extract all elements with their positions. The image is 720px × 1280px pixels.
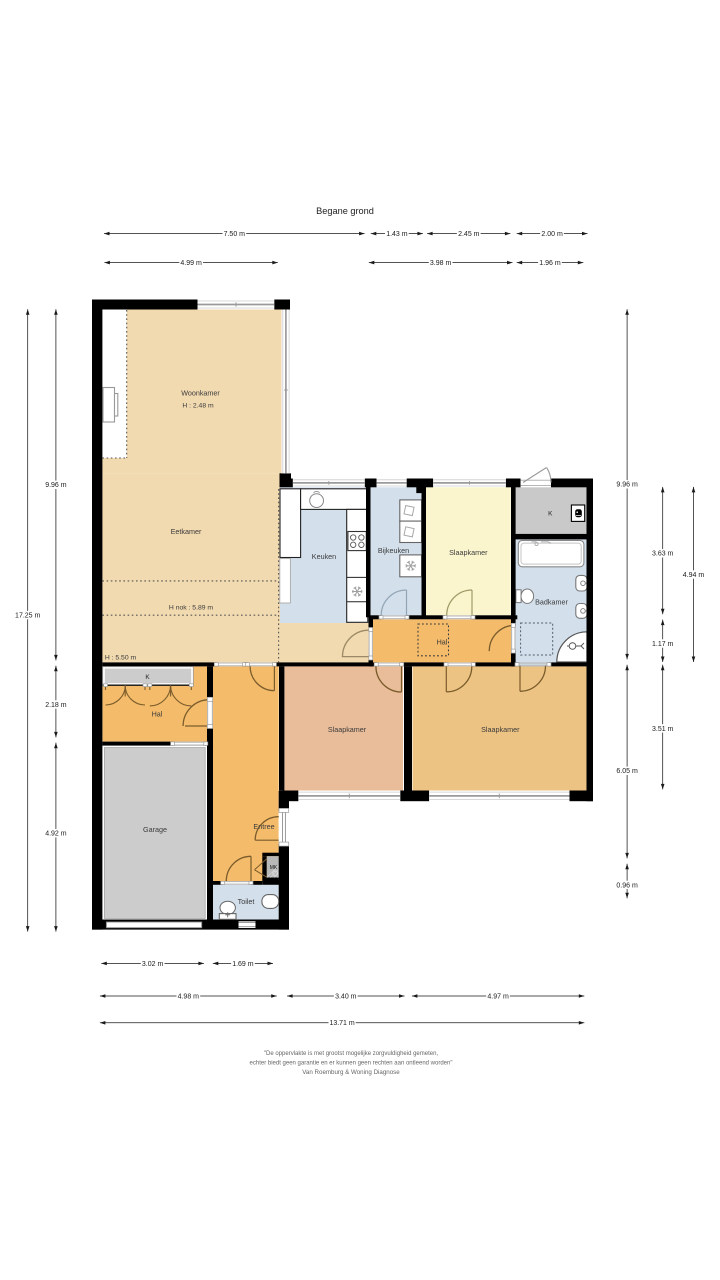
svg-text:Garage: Garage bbox=[143, 825, 167, 834]
svg-text:Badkamer: Badkamer bbox=[535, 597, 568, 606]
svg-text:2.45 m: 2.45 m bbox=[458, 231, 480, 238]
svg-text:Van Roemburg & Woning Diagnose: Van Roemburg & Woning Diagnose bbox=[302, 1069, 400, 1076]
svg-text:1.43 m: 1.43 m bbox=[386, 231, 408, 238]
svg-text:Hal: Hal bbox=[152, 710, 163, 719]
svg-text:7.50 m: 7.50 m bbox=[224, 231, 246, 238]
svg-text:K: K bbox=[548, 510, 553, 517]
svg-text:9.96 m: 9.96 m bbox=[616, 482, 638, 489]
svg-text:4.92 m: 4.92 m bbox=[45, 831, 67, 838]
svg-text:MK: MK bbox=[270, 865, 278, 871]
svg-text:"De oppervlakte is met grootst: "De oppervlakte is met grootst mogelijke… bbox=[264, 1051, 439, 1057]
svg-text:Begane grond: Begane grond bbox=[316, 206, 374, 216]
svg-text:Toilet: Toilet bbox=[238, 897, 255, 906]
svg-text:H : 5.50 m: H : 5.50 m bbox=[105, 655, 137, 662]
svg-text:Entree: Entree bbox=[253, 822, 274, 831]
svg-text:3.63 m: 3.63 m bbox=[652, 551, 674, 558]
svg-text:2.18 m: 2.18 m bbox=[45, 702, 67, 709]
svg-text:4.97 m: 4.97 m bbox=[487, 993, 509, 1000]
svg-text:4.98 m: 4.98 m bbox=[178, 993, 200, 1000]
svg-text:Hal: Hal bbox=[437, 637, 448, 646]
svg-text:1.96 m: 1.96 m bbox=[539, 260, 561, 267]
svg-text:H nok : 5.89 m: H nok : 5.89 m bbox=[169, 604, 214, 611]
svg-text:K: K bbox=[145, 674, 150, 681]
svg-text:Bijkeuken: Bijkeuken bbox=[378, 546, 409, 555]
svg-text:H : 2.48 m: H : 2.48 m bbox=[182, 402, 214, 409]
svg-text:Slaapkamer: Slaapkamer bbox=[449, 548, 488, 557]
svg-text:3.40 m: 3.40 m bbox=[335, 993, 357, 1000]
svg-text:Woonkamer: Woonkamer bbox=[181, 389, 220, 398]
svg-text:1.17 m: 1.17 m bbox=[652, 641, 674, 648]
svg-text:Slaapkamer: Slaapkamer bbox=[328, 725, 367, 734]
svg-text:1.69 m: 1.69 m bbox=[232, 961, 254, 968]
svg-text:2.00 m: 2.00 m bbox=[541, 231, 563, 238]
svg-text:6.05 m: 6.05 m bbox=[616, 768, 638, 775]
svg-text:13.71 m: 13.71 m bbox=[329, 1020, 354, 1027]
svg-text:echter biedt geen garantie en: echter biedt geen garantie en er kunnen … bbox=[250, 1060, 453, 1066]
svg-text:9.96 m: 9.96 m bbox=[45, 482, 67, 489]
svg-text:3.51 m: 3.51 m bbox=[652, 726, 674, 733]
svg-text:Keuken: Keuken bbox=[312, 552, 336, 561]
svg-text:4.99 m: 4.99 m bbox=[180, 260, 202, 267]
svg-text:17.25 m: 17.25 m bbox=[15, 613, 40, 620]
svg-text:3.98 m: 3.98 m bbox=[430, 260, 452, 267]
svg-text:Slaapkamer: Slaapkamer bbox=[481, 725, 520, 734]
svg-text:4.94 m: 4.94 m bbox=[683, 572, 705, 579]
svg-text:Eetkamer: Eetkamer bbox=[171, 527, 202, 536]
svg-text:3.02 m: 3.02 m bbox=[142, 961, 164, 968]
svg-text:0.96 m: 0.96 m bbox=[616, 882, 638, 889]
